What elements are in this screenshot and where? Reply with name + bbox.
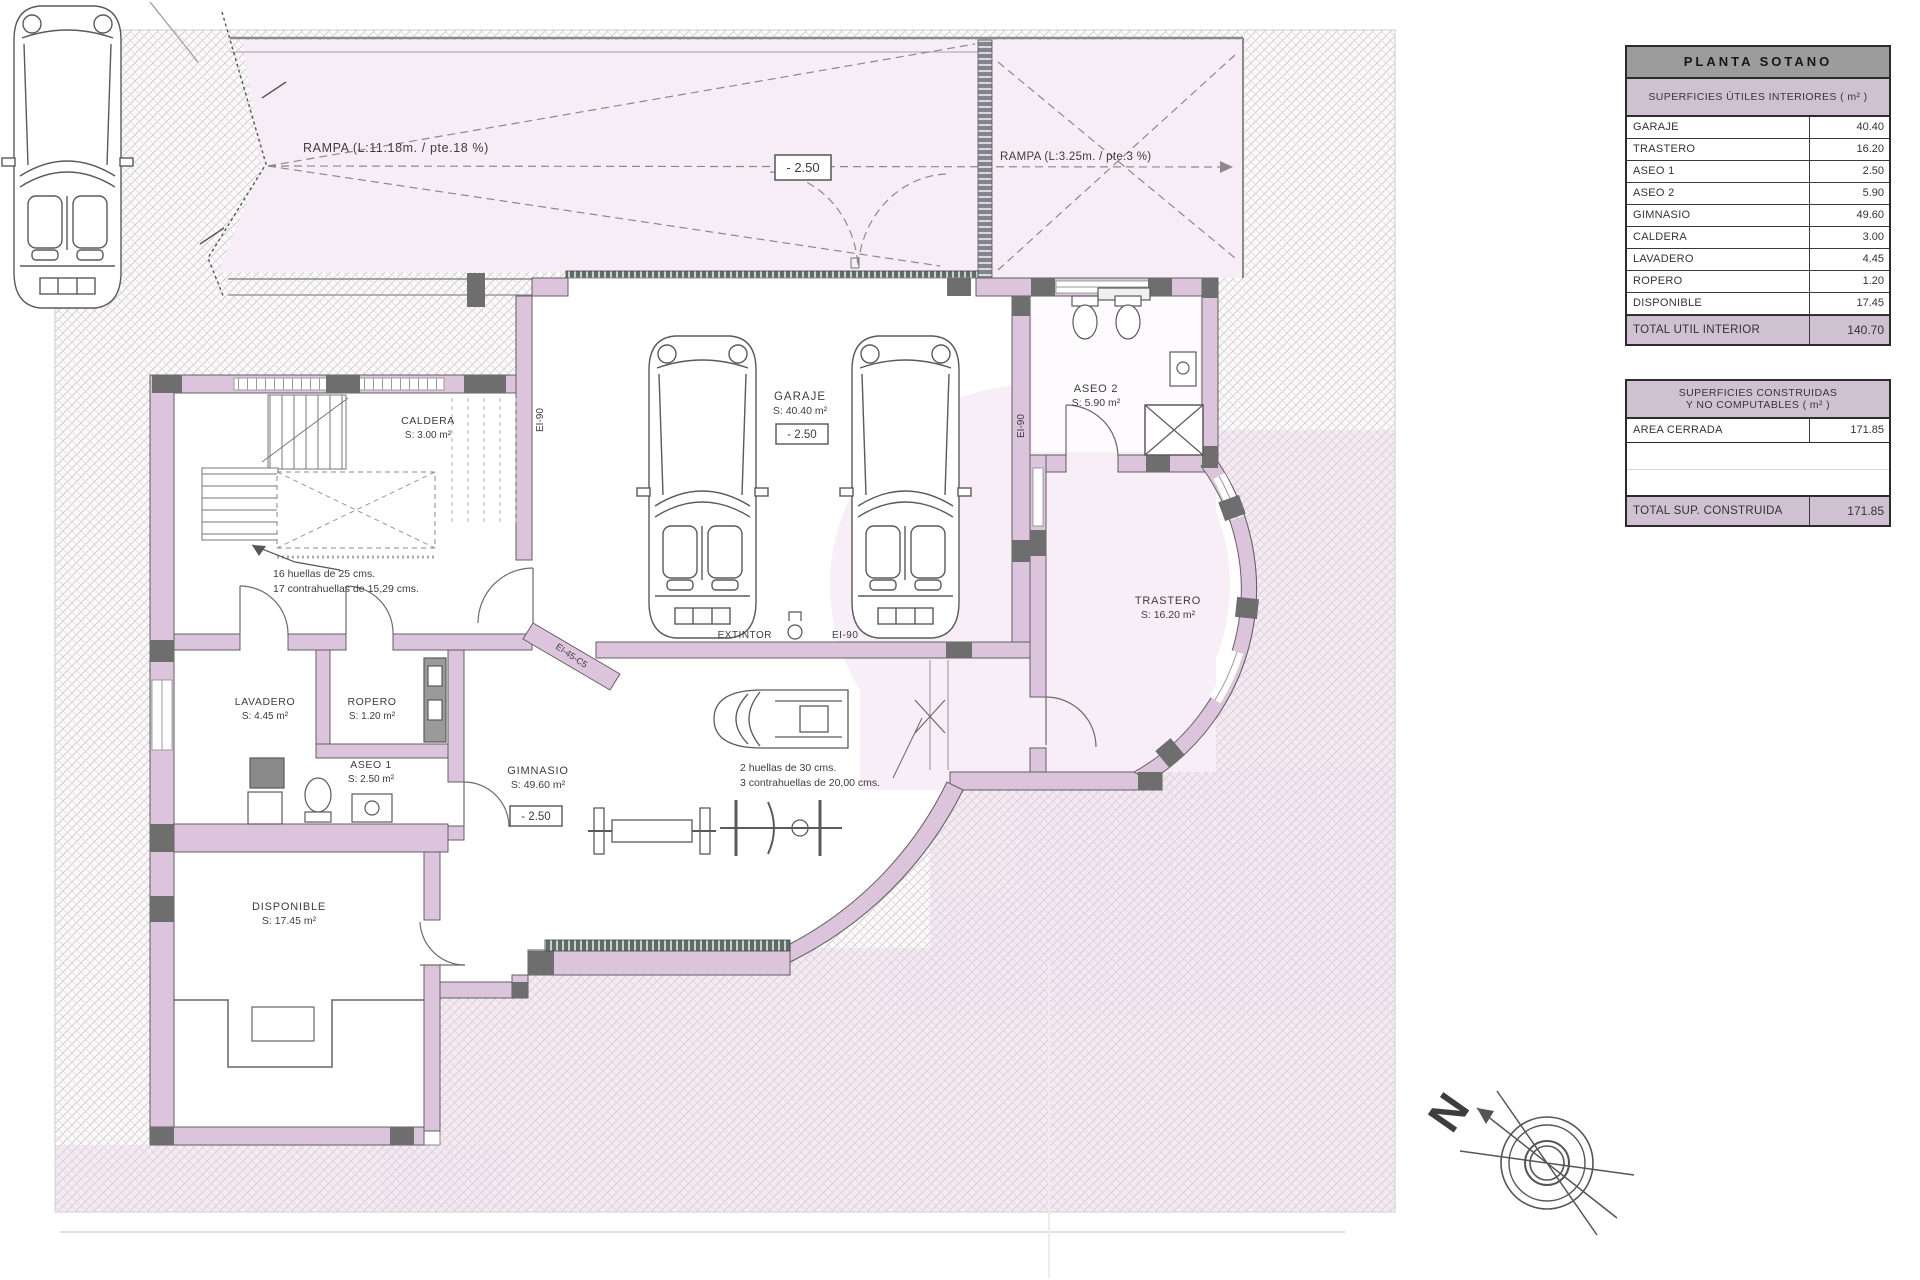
table-superficies-utiles: PLANTA SOTANO SUPERFICIES ÚTILES INTERIO…: [1625, 45, 1891, 346]
compass-arrowhead: [1477, 1108, 1494, 1124]
extintor-label: EXTINTOR: [718, 630, 772, 641]
table-row: LAVADERO4.45: [1627, 249, 1889, 271]
aseo1-area: S: 2.50 m²: [348, 774, 395, 785]
table-superficies-construidas: SUPERFICIES CONSTRUIDASY NO COMPUTABLES …: [1625, 379, 1891, 527]
ramp-main-label: RAMPA (L:11.18m. / pte.18 %): [303, 141, 489, 155]
table-row: ASEO 25.90: [1627, 183, 1889, 205]
garaje-name: GARAJE: [774, 391, 826, 403]
table-row: ASEO 12.50: [1627, 161, 1889, 183]
basement-floor-plan-sheet: RAMPA (L:11.18m. / pte.18 %) RAMPA (L:3.…: [0, 0, 1920, 1280]
ramp-zone: RAMPA (L:11.18m. / pte.18 %) RAMPA (L:3.…: [200, 12, 1243, 307]
garaje-area: S: 40.40 m²: [773, 405, 828, 417]
svg-text:- 2.50: - 2.50: [786, 160, 819, 175]
table-row: GIMNASIO49.60: [1627, 205, 1889, 227]
svg-text:- 2.50: - 2.50: [787, 429, 816, 441]
aseo1-name: ASEO 1: [350, 759, 392, 771]
ramp-divider-shutter: [978, 40, 992, 278]
ramp-secondary-label: RAMPA (L:3.25m. / pte.3 %): [1000, 151, 1151, 163]
ropero-name: ROPERO: [347, 696, 396, 708]
caldera-name: CALDERA: [401, 415, 455, 427]
gym-level-box: - 2.50: [510, 806, 562, 826]
table-total-row: TOTAL UTIL INTERIOR140.70: [1627, 315, 1889, 344]
table-row: TRASTERO16.20: [1627, 139, 1889, 161]
trastero-name: TRASTERO: [1135, 595, 1201, 607]
disponible-area: S: 17.45 m²: [262, 915, 317, 927]
lavadero-name: LAVADERO: [235, 696, 295, 708]
table-row: GARAJE40.40: [1627, 117, 1889, 139]
table-subtitle: SUPERFICIES ÚTILES INTERIORES ( m² ): [1627, 79, 1889, 117]
north-compass: N: [1418, 1084, 1634, 1235]
disponible-name: DISPONIBLE: [252, 901, 326, 913]
trastero-area: S: 16.20 m²: [1141, 609, 1196, 621]
table-row: AREA CERRADA171.85: [1627, 419, 1889, 443]
table-empty-row: [1627, 443, 1889, 496]
table-row: CALDERA3.00: [1627, 227, 1889, 249]
stairs-main-line2: 17 contrahuellas de 15,29 cms.: [273, 583, 419, 595]
stairs-main-line1: 16 huellas de 25 cms.: [273, 568, 375, 580]
garage-level-box: - 2.50: [776, 424, 828, 444]
gimnasio-name: GIMNASIO: [507, 765, 568, 777]
table-total-row: TOTAL SUP. CONSTRUIDA171.85: [1627, 496, 1889, 525]
stairs-hall-line1: 2 huellas de 30 cms.: [740, 762, 836, 774]
ropero-area: S: 1.20 m²: [349, 711, 396, 722]
lavadero-area: S: 4.45 m²: [242, 711, 289, 722]
car-top-view: [2, 6, 133, 308]
stairs-hall-line2: 3 contrahuellas de 20,00 cms.: [740, 777, 880, 789]
gimnasio-area: S: 49.60 m²: [511, 779, 566, 791]
gym-window-strip: [545, 940, 790, 951]
ramp-level-box: - 2.50: [775, 155, 831, 180]
table-row: DISPONIBLE17.45: [1627, 293, 1889, 315]
table-title: SUPERFICIES CONSTRUIDASY NO COMPUTABLES …: [1627, 381, 1889, 419]
table-title: PLANTA SOTANO: [1627, 47, 1889, 79]
svg-text:- 2.50: - 2.50: [521, 811, 550, 823]
ei90-vertical-left: EI-90: [535, 408, 546, 432]
aseo2-name: ASEO 2: [1074, 383, 1119, 395]
ei90-label: EI-90: [832, 630, 858, 641]
ei90-vertical-right: EI-90: [1016, 414, 1027, 438]
car-1: [637, 336, 768, 638]
aseo2-area: S: 5.90 m²: [1072, 397, 1121, 409]
caldera-area: S: 3.00 m²: [405, 430, 452, 441]
pillar: [467, 273, 485, 307]
car-2: [840, 336, 971, 638]
table-row: ROPERO1.20: [1627, 271, 1889, 293]
north-letter: N: [1418, 1084, 1480, 1141]
